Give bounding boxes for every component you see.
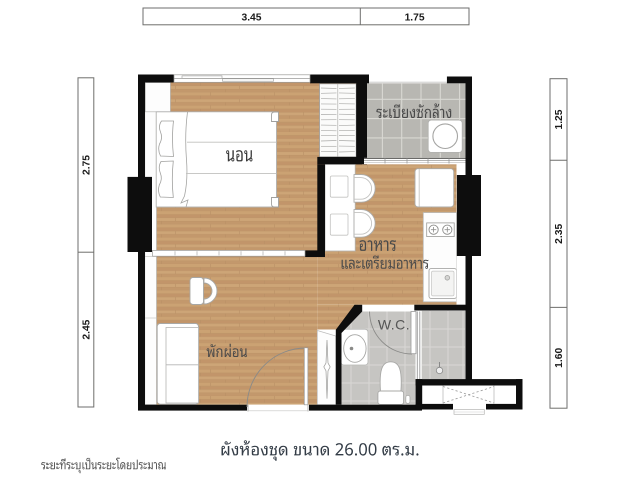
svg-text:2.75: 2.75 <box>81 155 92 175</box>
svg-text:1.25: 1.25 <box>554 109 565 129</box>
svg-text:2.45: 2.45 <box>81 319 92 339</box>
svg-text:3.45: 3.45 <box>241 12 261 23</box>
svg-text:W.C.: W.C. <box>378 316 410 332</box>
svg-text:1.60: 1.60 <box>554 348 565 368</box>
svg-text:1.75: 1.75 <box>405 12 425 23</box>
svg-text:2.35: 2.35 <box>554 224 565 244</box>
